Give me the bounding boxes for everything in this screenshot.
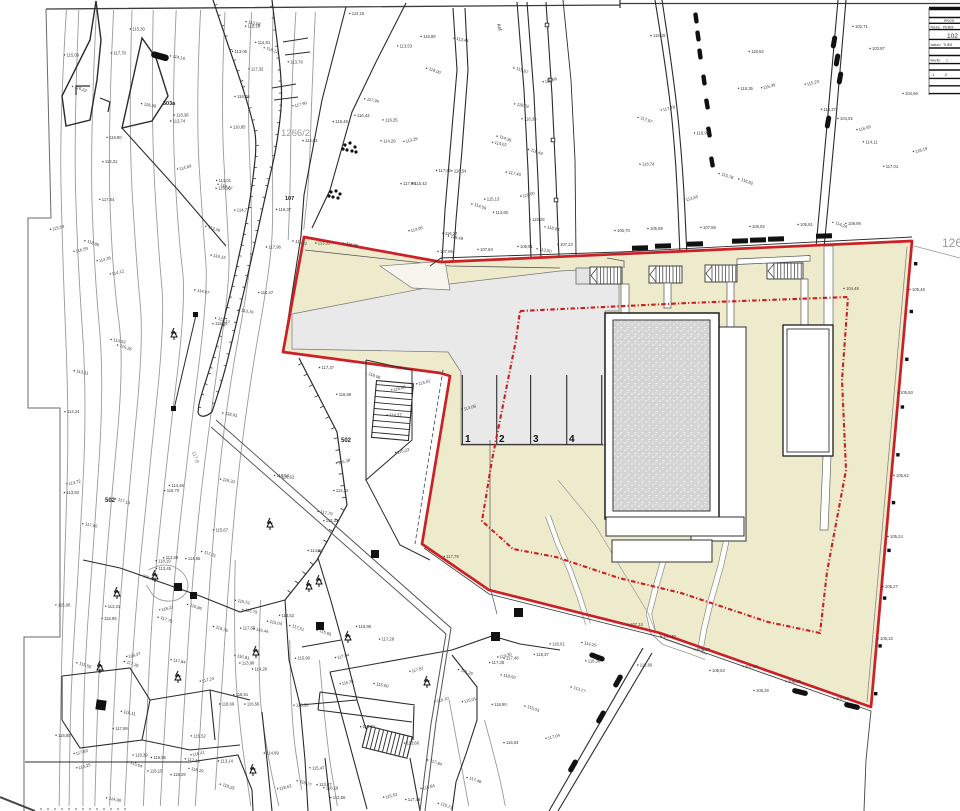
- svg-text:116,43: 116,43: [357, 113, 370, 118]
- svg-text:113,53: 113,53: [400, 43, 413, 48]
- svg-text:105,48: 105,48: [912, 287, 925, 292]
- svg-text:114,28: 114,28: [255, 667, 268, 672]
- svg-text:115,30: 115,30: [132, 27, 145, 32]
- svg-text:114,34: 114,34: [363, 724, 376, 729]
- svg-text:116,09: 116,09: [237, 94, 250, 99]
- svg-text:105,93: 105,93: [900, 390, 913, 395]
- svg-text:115,48: 115,48: [335, 119, 348, 124]
- svg-text:118,90: 118,90: [494, 702, 507, 707]
- svg-text:113,37: 113,37: [823, 107, 836, 112]
- svg-text:1: 1: [465, 434, 471, 445]
- svg-text:105,62: 105,62: [896, 473, 909, 478]
- svg-text:107,96: 107,96: [440, 249, 453, 254]
- svg-text:113,74: 113,74: [173, 119, 186, 124]
- svg-text:108,27: 108,27: [697, 647, 710, 652]
- svg-text:115,99: 115,99: [104, 616, 117, 621]
- svg-text:115,08: 115,08: [58, 602, 71, 607]
- svg-text:114,16: 114,16: [352, 11, 365, 16]
- svg-text:datum: datum: [931, 43, 941, 47]
- svg-text:502: 502: [105, 498, 116, 504]
- svg-text:114,37: 114,37: [389, 413, 402, 418]
- svg-text:113,06: 113,06: [235, 49, 248, 54]
- svg-text:118,01: 118,01: [552, 641, 565, 646]
- svg-text:116,35: 116,35: [385, 117, 398, 122]
- svg-text:115,09: 115,09: [67, 52, 80, 57]
- svg-text:107,93: 107,93: [836, 696, 849, 701]
- svg-text:118,69: 118,69: [222, 702, 235, 707]
- svg-text:113,93: 113,93: [66, 490, 79, 495]
- svg-text:107,23: 107,23: [560, 242, 573, 247]
- svg-text:114,48: 114,48: [171, 483, 184, 488]
- svg-text:115,42: 115,42: [414, 181, 427, 186]
- svg-text:116,28: 116,28: [532, 217, 545, 222]
- svg-text:115,52: 115,52: [193, 733, 206, 738]
- svg-text:105,15: 105,15: [880, 636, 893, 641]
- svg-text:'SJE6: 'SJE6: [943, 43, 952, 47]
- svg-text:113,45: 113,45: [159, 566, 172, 571]
- svg-text:117,37: 117,37: [322, 365, 335, 370]
- svg-text:118,54: 118,54: [277, 473, 290, 478]
- svg-text:107: 107: [285, 196, 294, 202]
- svg-text:108,99: 108,99: [848, 221, 861, 226]
- svg-text:116,37: 116,37: [279, 207, 292, 212]
- svg-text:118,80: 118,80: [109, 135, 122, 140]
- svg-text:106,70: 106,70: [617, 228, 630, 233]
- svg-text:116,85: 116,85: [58, 733, 71, 738]
- svg-text:104,48: 104,48: [846, 286, 859, 291]
- svg-text:118,37: 118,37: [536, 652, 549, 657]
- svg-text:115,47: 115,47: [312, 765, 325, 770]
- svg-text:126: 126: [942, 236, 960, 250]
- svg-text:115,95: 115,95: [153, 755, 166, 760]
- svg-text:115,98: 115,98: [359, 624, 372, 629]
- svg-text:118,52: 118,52: [751, 49, 764, 54]
- svg-text:115,35: 115,35: [740, 86, 753, 91]
- svg-text:Risba: Risba: [931, 26, 940, 30]
- svg-text:102,71: 102,71: [855, 24, 868, 29]
- svg-text:113,56: 113,56: [333, 795, 346, 800]
- svg-text:502: 502: [341, 438, 352, 444]
- svg-text:4: 4: [569, 434, 575, 445]
- svg-text:-1: -1: [931, 73, 934, 77]
- svg-text:114,55: 114,55: [188, 556, 201, 561]
- svg-text:114,24: 114,24: [67, 409, 80, 414]
- svg-text:114,80: 114,80: [310, 548, 323, 553]
- svg-text:113,31: 113,31: [326, 518, 339, 523]
- svg-text:104,40: 104,40: [663, 634, 676, 639]
- svg-text:114,81: 114,81: [258, 40, 271, 45]
- svg-text:116,85: 116,85: [233, 125, 246, 130]
- svg-text:503a: 503a: [163, 101, 176, 107]
- svg-text:116,53: 116,53: [296, 703, 309, 708]
- svg-text:118,68: 118,68: [339, 392, 352, 397]
- svg-text:114,11: 114,11: [866, 139, 879, 144]
- svg-text:118,39: 118,39: [135, 752, 148, 757]
- svg-text:114,77: 114,77: [237, 208, 250, 213]
- svg-text:116,70: 116,70: [167, 488, 180, 493]
- svg-text:107,88: 107,88: [703, 225, 716, 230]
- svg-text:105,89: 105,89: [650, 226, 663, 231]
- svg-text:Merilo: Merilo: [931, 59, 941, 63]
- svg-text:108,63: 108,63: [712, 668, 725, 673]
- svg-text:117,32: 117,32: [251, 66, 264, 71]
- svg-text:117,01: 117,01: [886, 164, 899, 169]
- svg-text:113,31: 113,31: [318, 241, 331, 246]
- svg-text:116,38: 116,38: [588, 658, 601, 663]
- svg-text:115,15: 115,15: [653, 33, 666, 38]
- svg-text:118,38: 118,38: [176, 113, 189, 118]
- svg-text:106,92: 106,92: [752, 224, 765, 229]
- svg-text:115,13: 115,13: [487, 197, 500, 202]
- svg-text:118,69: 118,69: [640, 663, 653, 668]
- svg-text:107,68: 107,68: [745, 664, 758, 669]
- svg-text:105,27: 105,27: [885, 584, 898, 589]
- svg-text:-0: -0: [944, 73, 947, 77]
- svg-text:114,52: 114,52: [282, 613, 295, 618]
- svg-text:104,66: 104,66: [905, 91, 918, 96]
- svg-text:115,90: 115,90: [298, 656, 311, 661]
- svg-text:103,97: 103,97: [872, 46, 885, 51]
- svg-text:114,47: 114,47: [261, 290, 274, 295]
- svg-text:1: 1: [946, 59, 948, 63]
- svg-text:118,51: 118,51: [236, 692, 249, 697]
- svg-text:118,19: 118,19: [158, 558, 171, 563]
- svg-text:113,98: 113,98: [242, 661, 255, 666]
- svg-text:117,79: 117,79: [446, 554, 459, 559]
- svg-text:117,65: 117,65: [243, 626, 256, 631]
- svg-text:PERM: PERM: [943, 26, 953, 30]
- svg-text:118,35: 118,35: [524, 116, 537, 121]
- svg-text:116,56: 116,56: [247, 702, 260, 707]
- svg-text:107,24: 107,24: [630, 622, 643, 627]
- svg-text:114,22: 114,22: [336, 488, 349, 493]
- svg-text:114,89: 114,89: [266, 751, 279, 756]
- svg-text:115,67: 115,67: [216, 527, 229, 532]
- svg-text:118,29: 118,29: [173, 772, 186, 777]
- svg-text:116,15: 116,15: [150, 769, 163, 774]
- svg-text:117,28: 117,28: [382, 637, 395, 642]
- svg-text:108,91: 108,91: [520, 244, 533, 249]
- svg-text:118,54: 118,54: [454, 168, 467, 173]
- svg-text:117,96: 117,96: [268, 245, 281, 250]
- svg-text:113,14: 113,14: [221, 759, 234, 764]
- svg-text:113,31: 113,31: [105, 159, 118, 164]
- svg-text:PROS: PROS: [944, 19, 955, 23]
- svg-text:116,95: 116,95: [697, 131, 710, 136]
- svg-text:117,68: 117,68: [115, 726, 128, 731]
- svg-text:116,04: 116,04: [506, 740, 519, 745]
- svg-text:2: 2: [499, 434, 505, 445]
- svg-text:3: 3: [533, 434, 539, 445]
- svg-text:107,84: 107,84: [480, 247, 493, 252]
- svg-text:113,76: 113,76: [290, 59, 303, 64]
- svg-text:116,89: 116,89: [423, 34, 436, 39]
- svg-text:117,49: 117,49: [408, 797, 421, 802]
- svg-text:113,60: 113,60: [407, 741, 420, 746]
- svg-text:117,70: 117,70: [114, 51, 127, 56]
- svg-text:114,29: 114,29: [383, 138, 396, 143]
- svg-text:117,38: 117,38: [492, 660, 505, 665]
- svg-text:102: 102: [947, 33, 958, 40]
- svg-text:105,91: 105,91: [800, 222, 813, 227]
- svg-text:106,95: 106,95: [788, 679, 801, 684]
- svg-text:117,82: 117,82: [439, 168, 452, 173]
- svg-text:108,29: 108,29: [756, 688, 769, 693]
- svg-text:117,64: 117,64: [102, 197, 115, 202]
- svg-text:113,31: 113,31: [108, 604, 121, 609]
- svg-text:104,92: 104,92: [840, 116, 853, 121]
- svg-text:114,83: 114,83: [305, 138, 318, 143]
- svg-text:118,74: 118,74: [642, 162, 655, 167]
- svg-text:117,88: 117,88: [403, 181, 416, 186]
- svg-text:118,18: 118,18: [326, 785, 339, 790]
- svg-text:113,60: 113,60: [496, 210, 509, 215]
- svg-text:105,24: 105,24: [890, 534, 903, 539]
